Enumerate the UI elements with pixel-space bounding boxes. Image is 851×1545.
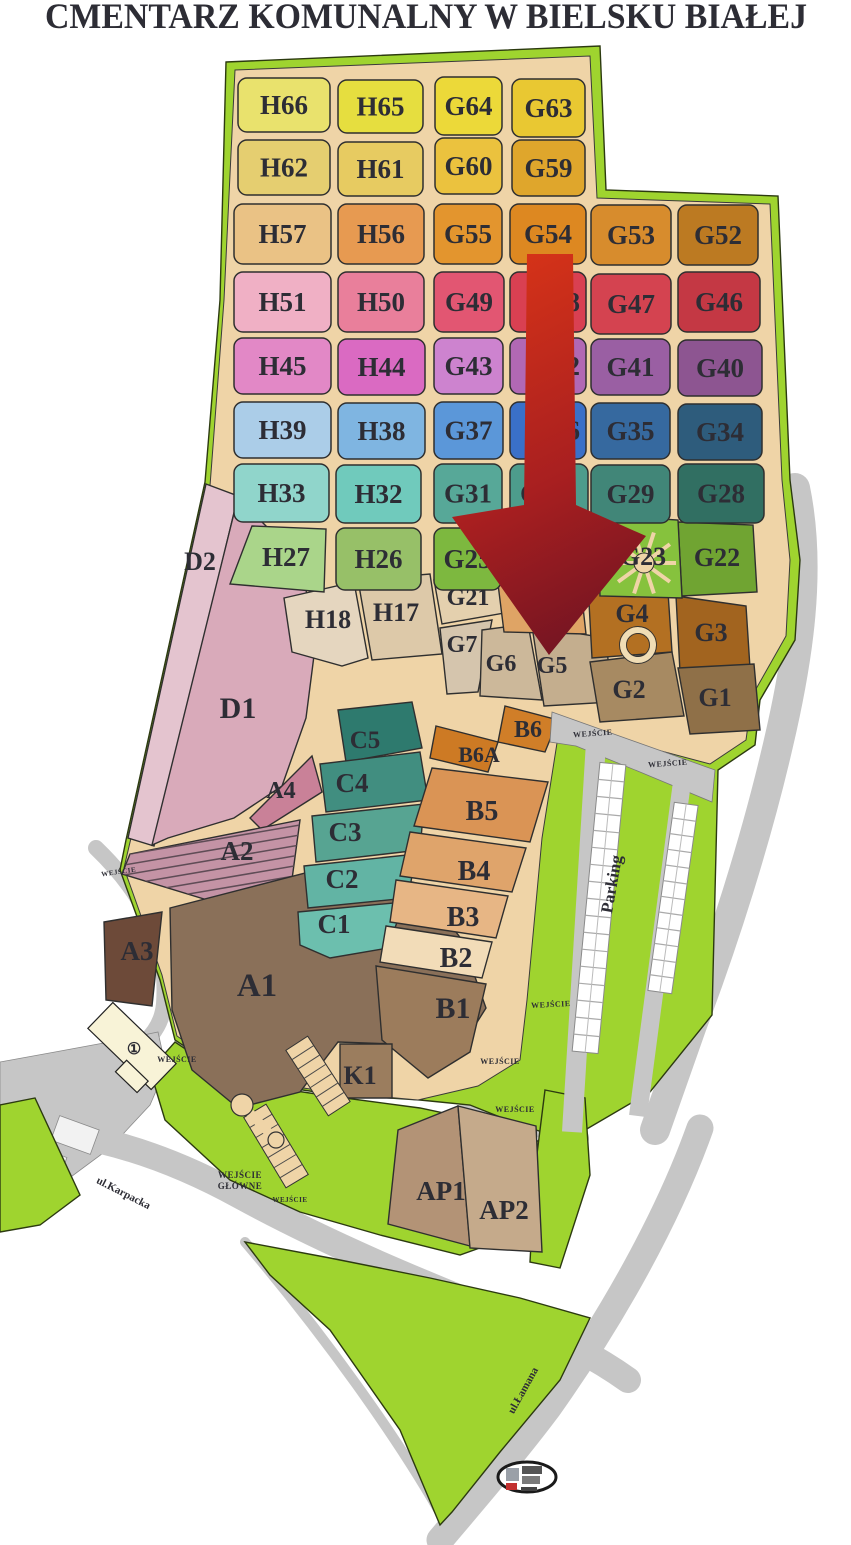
map-title: CMENTARZ KOMUNALNY W BIELSKU BIAŁEJ xyxy=(45,0,807,36)
section-label-G4: G4 xyxy=(615,599,648,628)
section-label-G5: G5 xyxy=(537,653,568,679)
tile-label-G34: G34 xyxy=(696,417,744,447)
street-label-karpacka: ul.Karpacka xyxy=(94,1175,152,1213)
tile-label-H57: H57 xyxy=(258,219,306,249)
entrance-label: GŁÓWNE xyxy=(218,1181,263,1191)
tile-label-H51: H51 xyxy=(258,287,306,317)
tile-label-H26: H26 xyxy=(354,544,402,574)
tile-label-G63: G63 xyxy=(524,93,572,123)
section-label-H17: H17 xyxy=(373,598,419,627)
tile-label-G29: G29 xyxy=(606,479,654,509)
publisher-logo-block xyxy=(522,1476,540,1484)
section-label-G2: G2 xyxy=(612,675,645,704)
tile-label-H66: H66 xyxy=(260,90,308,120)
tile-label-G53: G53 xyxy=(607,220,655,250)
tile-label-G49: G49 xyxy=(445,287,493,317)
tile-label-G47: G47 xyxy=(607,289,655,319)
tile-label-H65: H65 xyxy=(356,92,404,122)
tile-label-G41: G41 xyxy=(606,352,654,382)
entrance-label: WEJŚCIE xyxy=(218,1170,262,1180)
section-label-B3: B3 xyxy=(447,902,480,933)
section-label-D2: D2 xyxy=(184,547,216,576)
tile-label-G54: G54 xyxy=(524,219,572,249)
tile-label-H39: H39 xyxy=(258,415,306,445)
tile-label-H62: H62 xyxy=(260,153,308,183)
entrance-label: WEJŚCIE xyxy=(272,1196,307,1204)
section-label-G3: G3 xyxy=(694,618,727,647)
tile-label-G31: G31 xyxy=(444,479,492,509)
section-label-A3: A3 xyxy=(121,936,154,966)
section-label-A2: A2 xyxy=(221,836,254,866)
tile-label-G40: G40 xyxy=(696,353,744,383)
section-label-A1: A1 xyxy=(237,968,277,1004)
tile-label-G43: G43 xyxy=(444,351,492,381)
tile-label-H61: H61 xyxy=(356,154,404,184)
publisher-logo-block xyxy=(522,1466,542,1474)
section-label-G6: G6 xyxy=(486,651,517,677)
tile-label-H56: H56 xyxy=(357,219,405,249)
section-label-G7: G7 xyxy=(447,632,478,658)
section-label-C1: C1 xyxy=(318,909,351,939)
tile-label-G28: G28 xyxy=(697,479,745,509)
tile-label-H32: H32 xyxy=(354,479,402,509)
tile-label-G46: G46 xyxy=(695,287,743,317)
tile-label-G60: G60 xyxy=(444,151,492,181)
publisher-logo-block xyxy=(506,1468,519,1481)
tile-label-G35: G35 xyxy=(606,416,654,446)
tile-label-G64: G64 xyxy=(444,91,492,121)
section-label-B6A: B6A xyxy=(458,742,500,767)
section-label-H18: H18 xyxy=(305,605,351,634)
section-label-G22: G22 xyxy=(694,543,740,572)
section-label-G1: G1 xyxy=(698,683,731,712)
walkway-circle-plaza xyxy=(231,1094,253,1116)
section-label-B4: B4 xyxy=(458,856,491,887)
section-label-H27: H27 xyxy=(262,542,310,572)
entrance-label: WEJŚCIE xyxy=(480,1056,520,1066)
cemetery-map-page: D2D1A4A2A3A1C5C4C3C2C1B6B6AB5B4B3B2B1K1A… xyxy=(0,0,851,1545)
tile-label-G59: G59 xyxy=(524,153,572,183)
publisher-logo-block xyxy=(506,1483,517,1490)
section-label-C3: C3 xyxy=(329,817,362,847)
tile-label-H38: H38 xyxy=(357,416,405,446)
tile-label-G55: G55 xyxy=(444,219,492,249)
section-AP2 xyxy=(458,1106,542,1252)
tile-label-H50: H50 xyxy=(357,287,405,317)
tile-label-H44: H44 xyxy=(357,352,405,382)
building-number-1: ① xyxy=(127,1041,141,1058)
section-label-C2: C2 xyxy=(326,864,359,894)
section-label-A4: A4 xyxy=(266,778,295,804)
entrance-label: WEJŚCIE xyxy=(157,1054,197,1064)
section-label-D1: D1 xyxy=(220,692,257,725)
entrance-label: WEJŚCIE xyxy=(531,998,571,1010)
tile-label-H33: H33 xyxy=(257,478,305,508)
section-label-B5: B5 xyxy=(466,796,499,827)
section-label-C4: C4 xyxy=(336,768,369,798)
publisher-logo-block xyxy=(521,1487,537,1491)
section-label-AP1: AP1 xyxy=(416,1176,466,1206)
section-label-C5: C5 xyxy=(350,727,381,754)
entrance-label: WEJŚCIE xyxy=(495,1104,535,1114)
tile-label-G52: G52 xyxy=(694,220,742,250)
cemetery-map: D2D1A4A2A3A1C5C4C3C2C1B6B6AB5B4B3B2B1K1A… xyxy=(0,0,851,1545)
tile-label-G37: G37 xyxy=(444,416,492,446)
section-label-B2: B2 xyxy=(440,943,473,974)
tile-label-H45: H45 xyxy=(258,351,306,381)
section-label-B1: B1 xyxy=(435,992,470,1025)
section-label-B6: B6 xyxy=(514,717,542,743)
section-label-AP2: AP2 xyxy=(479,1195,529,1225)
walkway-bulb xyxy=(268,1132,284,1148)
section-label-K1: K1 xyxy=(343,1061,376,1090)
